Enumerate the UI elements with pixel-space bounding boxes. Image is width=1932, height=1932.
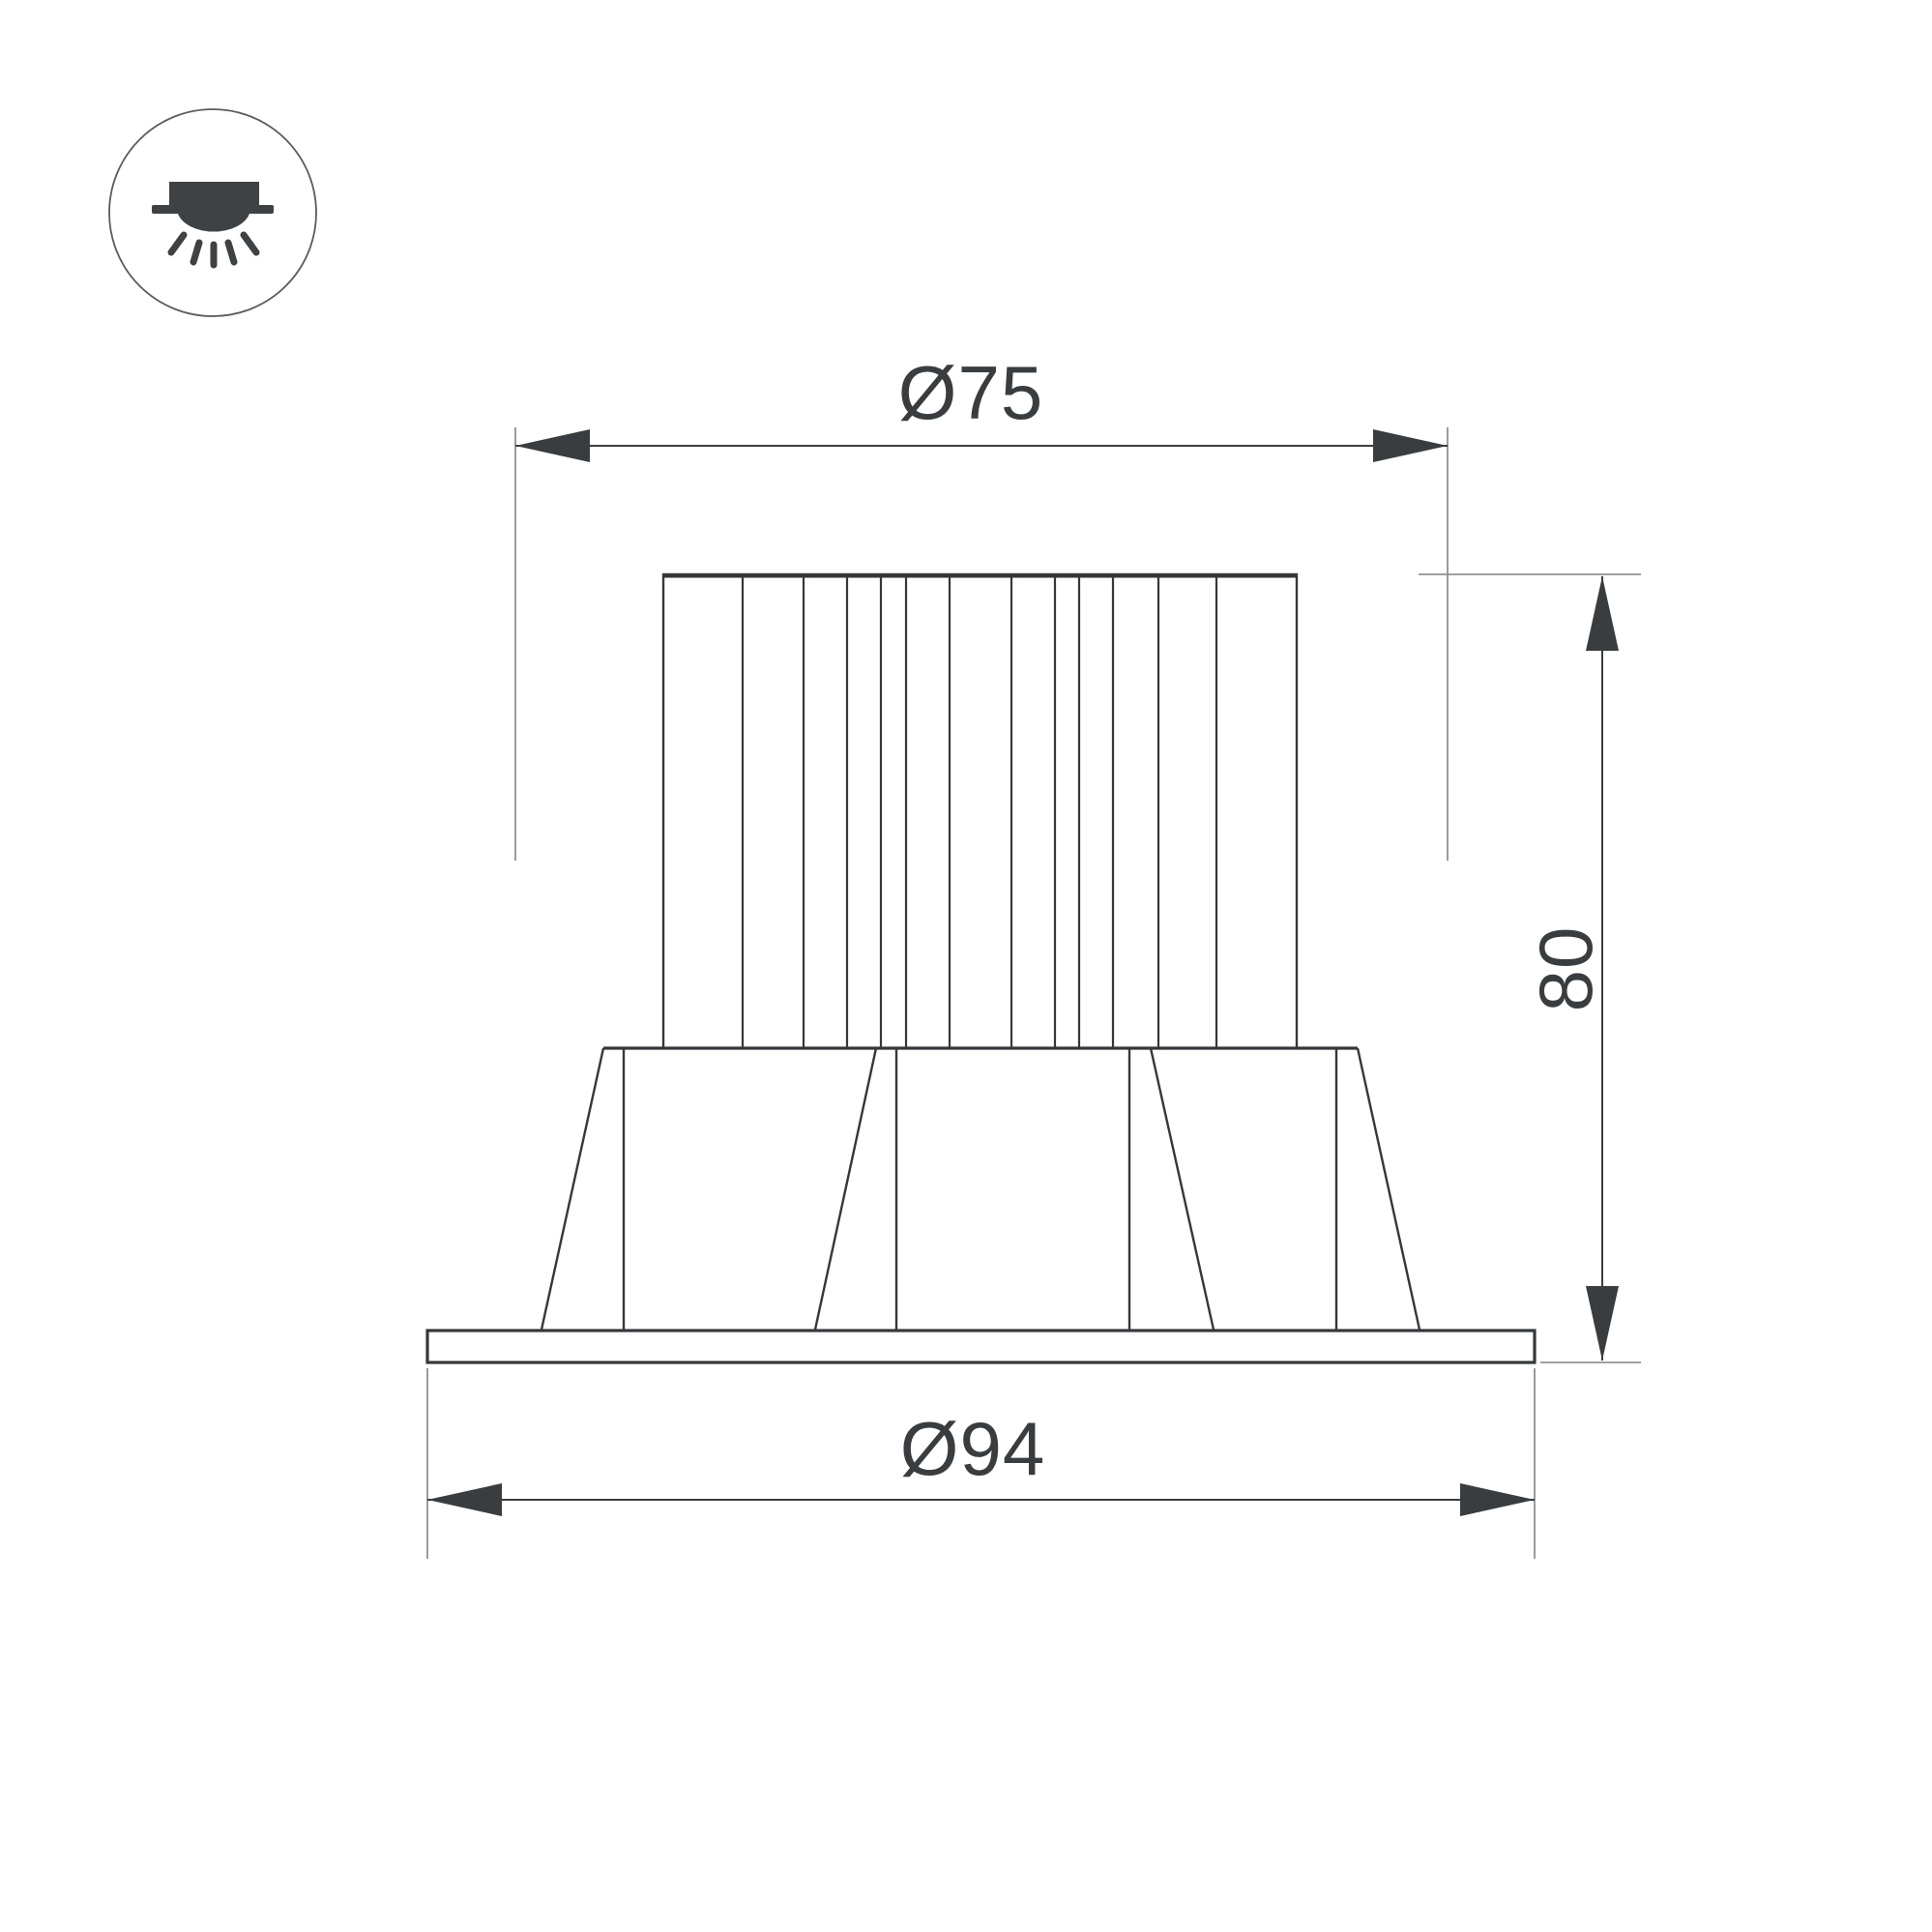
icon-ceiling-flange (152, 205, 274, 214)
cone-fill (542, 1048, 1420, 1330)
recessed-downlight-icon (109, 109, 316, 316)
dimension-label-bottom-diameter: Ø94 (900, 1406, 1045, 1491)
dimension-label-height: 80 (1523, 926, 1608, 1012)
heatsink-body (663, 574, 1297, 1048)
arrowhead-bottom (1586, 1286, 1619, 1361)
heatsink-outline (663, 574, 1297, 1048)
dimension-label-top-diameter: Ø75 (898, 350, 1043, 435)
trim-flange (427, 1331, 1535, 1362)
dimension-height: 80 (1419, 574, 1641, 1362)
arrowhead-top (1586, 576, 1619, 651)
arrowhead-right (1460, 1483, 1535, 1516)
reflector-cone (542, 1048, 1420, 1330)
icon-lamp-body (169, 182, 259, 209)
technical-drawing-page: Ø75 Ø94 80 (0, 0, 1932, 1932)
dimension-bottom-diameter: Ø94 (427, 1368, 1535, 1559)
arrowhead-left (515, 429, 590, 462)
arrowhead-left (427, 1483, 502, 1516)
luminaire-dimension-drawing: Ø75 Ø94 80 (0, 0, 1932, 1932)
arrowhead-right (1373, 429, 1448, 462)
